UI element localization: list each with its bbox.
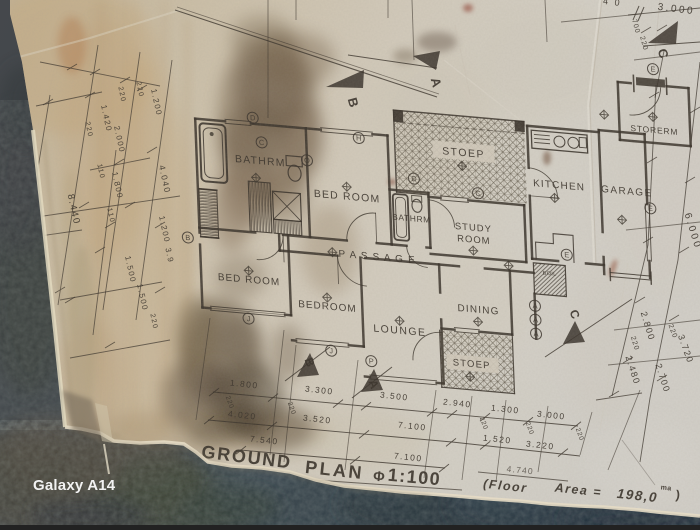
svg-text:Galaxy A14: Galaxy A14 bbox=[33, 477, 116, 494]
